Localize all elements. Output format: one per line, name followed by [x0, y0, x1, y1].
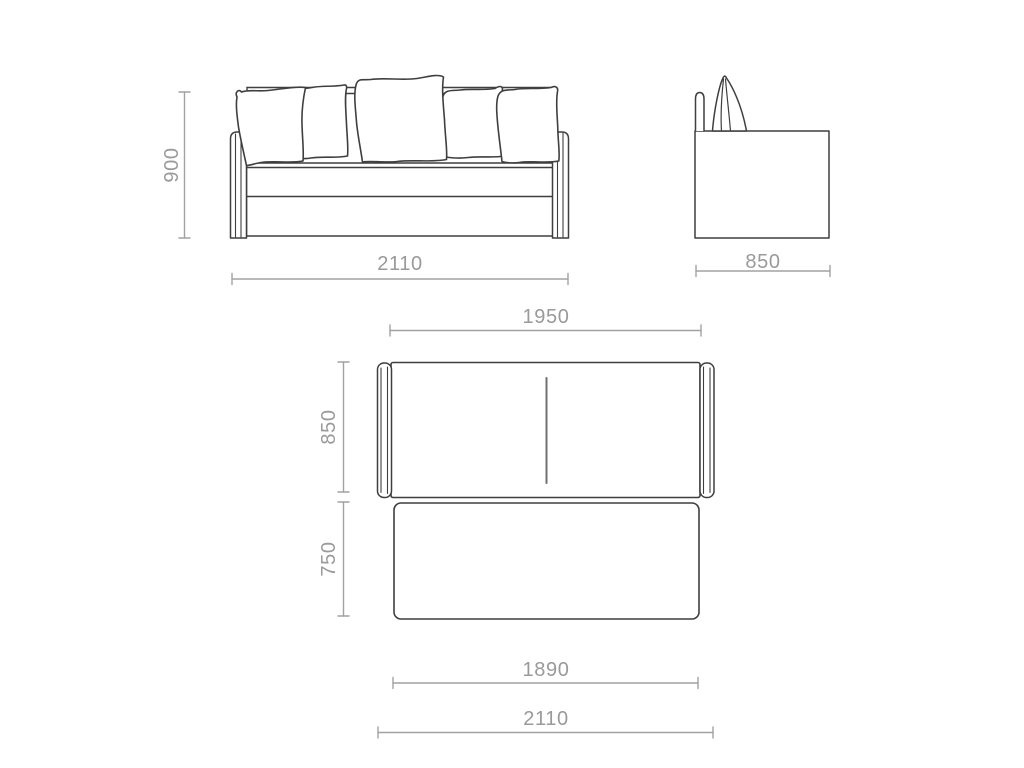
top-extension-panel	[394, 503, 699, 619]
top-left-armrest	[378, 363, 392, 498]
top-lower-depth-dimension-label: 750	[319, 541, 339, 576]
technical-drawing	[0, 0, 1024, 768]
top-upper-depth-dimension-label: 850	[319, 409, 339, 444]
pillow-3	[355, 75, 447, 162]
side-body	[695, 131, 829, 238]
top-upper-width-dimension-label: 1950	[523, 307, 570, 327]
front-view	[179, 75, 569, 284]
pillow-5	[497, 87, 560, 163]
front-height-dimension-label: 900	[162, 147, 182, 182]
pillows	[236, 75, 559, 165]
sofa-dimension-diagram: 900 2110 850 1950 850 750 1890 2110	[0, 0, 1024, 768]
top-right-armrest	[700, 363, 714, 498]
front-width-dimension-label: 2110	[377, 254, 422, 274]
top-overall-width-dimension-label: 2110	[523, 709, 568, 729]
side-armrest	[696, 93, 705, 132]
side-pillow	[713, 76, 747, 131]
top-lower-width-dimension-label: 1890	[523, 660, 570, 680]
pillow-4	[442, 87, 505, 159]
side-view	[695, 76, 830, 276]
seat-base	[247, 163, 554, 236]
pillow-1	[236, 87, 305, 165]
side-depth-dimension-label: 850	[745, 252, 780, 272]
front-width-dimension-line	[232, 274, 568, 285]
